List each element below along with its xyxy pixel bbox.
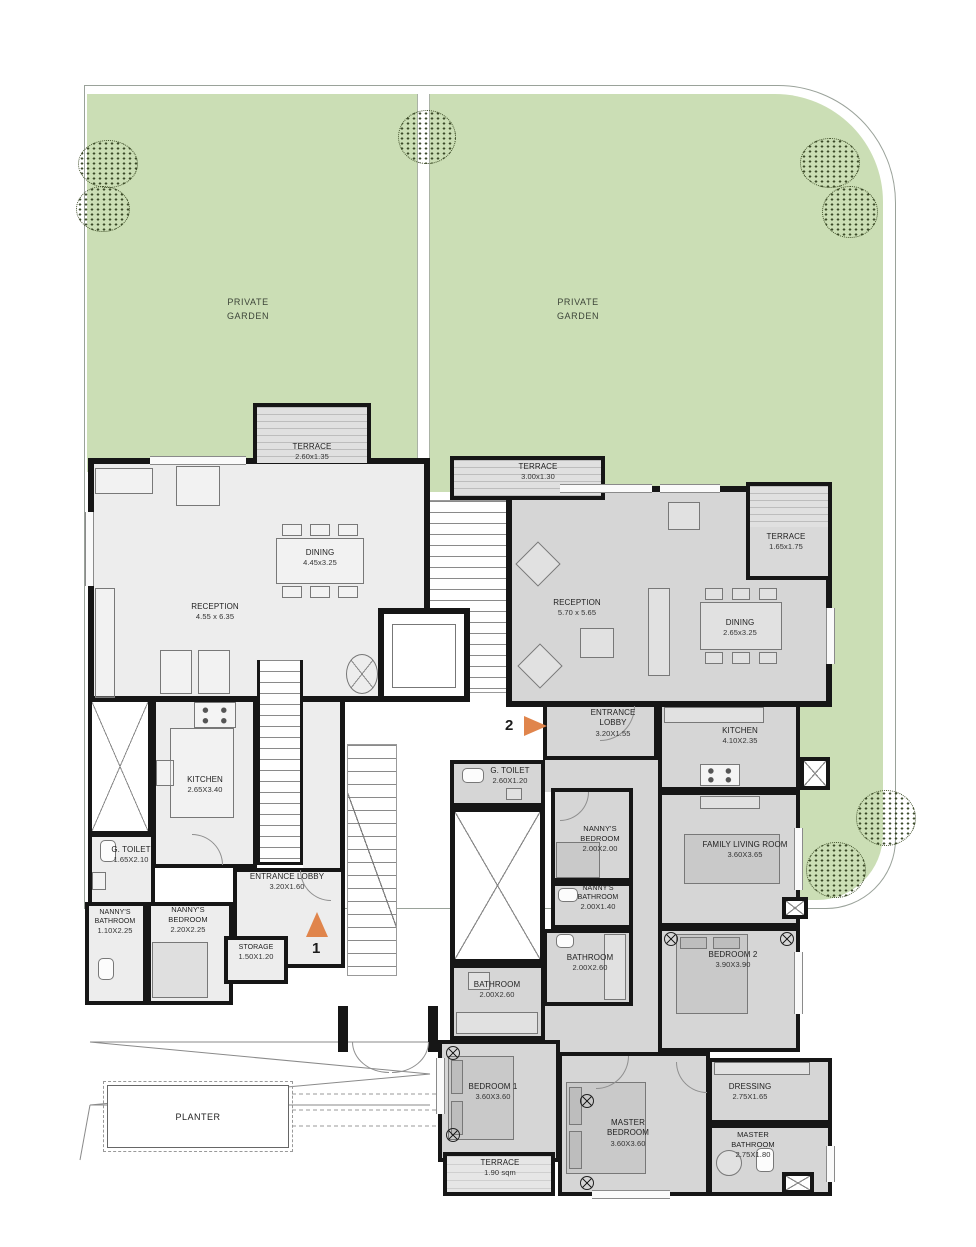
bathtub — [456, 1012, 538, 1034]
room-label: MASTER BATHROOM2.75X1.80 — [716, 1130, 790, 1159]
entry-arrow-unit1-icon — [306, 912, 328, 937]
room-label: KITCHEN4.10X2.35 — [705, 726, 775, 746]
tree-icon — [76, 186, 130, 232]
unit1-carport — [88, 698, 152, 835]
room-label: BEDROOM 23.90X3.90 — [698, 950, 768, 970]
stove-icon — [700, 764, 740, 786]
column-marker-icon — [580, 1176, 594, 1190]
garden-label-right: PRIVATE GARDEN — [543, 296, 613, 323]
room-label: MASTER BEDROOM3.60X3.60 — [593, 1118, 663, 1149]
window — [826, 1146, 835, 1182]
room-label: KITCHEN2.65X3.40 — [170, 775, 240, 795]
kitchen-counter — [664, 707, 764, 723]
room-label: FAMILY LIVING ROOM3.60X3.65 — [685, 840, 805, 860]
window — [560, 484, 652, 493]
room-label: NANNY'S BATHROOM1.10X2.25 — [89, 908, 141, 936]
sofa — [648, 588, 670, 676]
tree-icon — [78, 140, 138, 188]
room-label: NANNY'S BEDROOM2.00X2.00 — [570, 824, 630, 853]
service-shaft — [800, 757, 830, 790]
armchair — [176, 466, 220, 506]
tv-cabinet — [700, 796, 760, 809]
column-marker-icon — [664, 932, 678, 946]
window — [436, 1058, 445, 1114]
service-shaft — [782, 897, 808, 919]
wall-stub — [428, 1006, 438, 1052]
unit2-corridor-fill — [545, 758, 635, 792]
nanny-bed — [152, 942, 208, 998]
room-label: DRESSING2.75X1.65 — [710, 1082, 790, 1102]
room-label: TERRACE1.90 sqm — [465, 1158, 535, 1178]
kitchen-counter — [170, 728, 234, 818]
tree-icon — [856, 790, 916, 846]
room-label: TERRACE1.65x1.75 — [751, 532, 821, 552]
sofa — [95, 588, 115, 698]
unit2-terrace-east — [746, 482, 832, 580]
elevator-car — [392, 624, 456, 688]
dining-chair — [732, 652, 750, 664]
armchair — [160, 650, 192, 694]
room-label: BATHROOM2.00X2.60 — [464, 980, 530, 1000]
tree-icon — [800, 138, 860, 188]
unit1-hall-fill — [303, 698, 345, 872]
coffee-table — [580, 628, 614, 658]
garden-label-left: PRIVATE GARDEN — [213, 296, 283, 323]
dining-chair — [705, 652, 723, 664]
dining-chair — [338, 524, 358, 536]
room-label: DINING2.65x3.25 — [705, 618, 775, 638]
column-marker-icon — [580, 1094, 594, 1108]
room-label: G. TOILET1.65X2.10 — [95, 845, 167, 865]
round-shaft — [346, 654, 378, 694]
entry-number-unit1: 1 — [312, 940, 320, 957]
toilet-icon — [98, 958, 114, 980]
washbasin — [92, 872, 106, 890]
room-label: ENTRANCE LOBBY3.20X1.60 — [247, 872, 327, 892]
bed — [676, 934, 748, 1014]
tree-icon — [806, 842, 866, 898]
entry-arrow-unit2-icon — [524, 716, 547, 736]
tree-icon — [398, 110, 456, 164]
window — [794, 952, 803, 1014]
dining-chair — [282, 524, 302, 536]
dining-chair — [282, 586, 302, 598]
room-label: NANNY'S BATHROOM2.00X1.40 — [567, 884, 629, 912]
unit1-internal-stair — [257, 660, 303, 865]
elevator — [378, 608, 470, 702]
room-label: BATHROOM2.00X2.60 — [557, 953, 623, 973]
window — [85, 512, 94, 586]
armchair — [198, 650, 230, 694]
window — [826, 608, 835, 664]
room-label: G. TOILET2.60X1.20 — [470, 766, 550, 786]
floor-plan: PLANTER — [0, 0, 976, 1247]
stove-icon — [194, 702, 236, 728]
sofa — [95, 468, 153, 494]
wardrobe — [714, 1062, 810, 1075]
room-label: NANNY'S BEDROOM2.20X2.25 — [158, 905, 218, 934]
room-label: DINING4.45x3.25 — [285, 548, 355, 568]
side-ramp-stair — [347, 744, 397, 976]
room-label: TERRACE3.00x1.30 — [498, 462, 578, 482]
column-marker-icon — [446, 1046, 460, 1060]
room-label: STORAGE1.50X1.20 — [223, 943, 289, 962]
pillow — [680, 937, 707, 949]
column-marker-icon — [446, 1128, 460, 1142]
dining-chair — [732, 588, 750, 600]
dining-chair — [310, 586, 330, 598]
pillow — [569, 1131, 582, 1169]
planter: PLANTER — [107, 1085, 289, 1148]
planter-label: PLANTER — [108, 1086, 288, 1147]
room-label: RECEPTION5.70 x 5.65 — [537, 598, 617, 618]
window — [150, 456, 246, 465]
dining-chair — [338, 586, 358, 598]
room-label: BEDROOM 13.60X3.60 — [458, 1082, 528, 1102]
unit2-open-shaft — [450, 807, 545, 964]
pillow — [713, 937, 740, 949]
wall-stub — [338, 1006, 348, 1052]
dining-chair — [759, 652, 777, 664]
room-label: ENTRANCE LOBBY3.20X1.55 — [579, 708, 647, 739]
dining-chair — [310, 524, 330, 536]
washbasin — [506, 788, 522, 800]
toilet-icon — [556, 934, 574, 948]
entry-number-unit2: 2 — [505, 717, 513, 734]
tree-icon — [822, 186, 878, 238]
room-label: RECEPTION4.55 x 6.35 — [170, 602, 260, 622]
room-label: TERRACE2.60x1.35 — [277, 442, 347, 462]
pillow — [569, 1087, 582, 1125]
column-marker-icon — [780, 932, 794, 946]
dining-chair — [759, 588, 777, 600]
service-shaft — [782, 1172, 814, 1194]
window — [592, 1190, 670, 1199]
window — [660, 484, 720, 493]
tv-cabinet — [668, 502, 700, 530]
dining-chair — [705, 588, 723, 600]
